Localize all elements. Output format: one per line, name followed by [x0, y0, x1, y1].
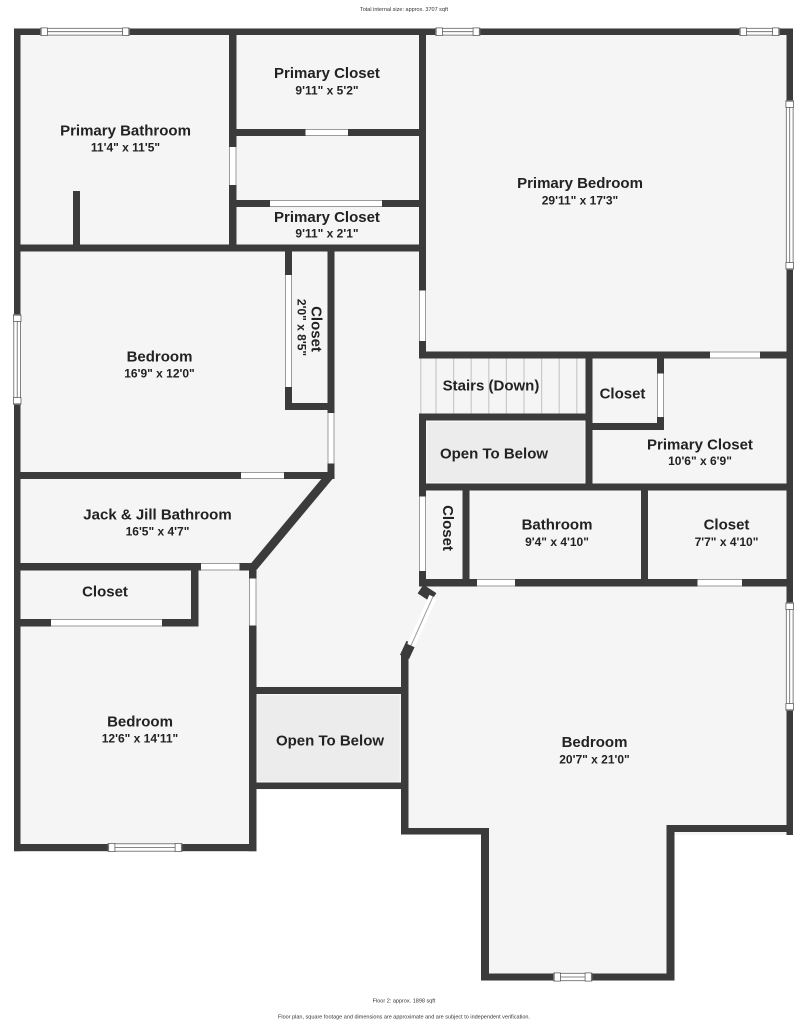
svg-text:Closet: Closet [82, 584, 128, 601]
svg-text:10'6" x 6'9": 10'6" x 6'9" [668, 454, 732, 468]
svg-text:Primary Closet: Primary Closet [647, 437, 753, 454]
svg-text:16'9" x 12'0": 16'9" x 12'0" [124, 367, 194, 381]
svg-text:Open To Below: Open To Below [440, 446, 548, 463]
svg-text:Floor 2: approx. 1898 sqft: Floor 2: approx. 1898 sqft [373, 999, 436, 1005]
svg-text:11'4" x 11'5": 11'4" x 11'5" [91, 141, 160, 155]
svg-text:Bedroom: Bedroom [127, 349, 193, 366]
svg-text:29'11" x 17'3": 29'11" x 17'3" [542, 194, 618, 208]
svg-text:16'5" x 4'7": 16'5" x 4'7" [126, 525, 190, 539]
svg-text:Total internal size: approx. 3: Total internal size: approx. 3707 sqft [360, 7, 449, 13]
svg-text:Closet: Closet [600, 386, 646, 403]
svg-text:Primary Bedroom: Primary Bedroom [517, 175, 643, 192]
svg-text:20'7" x 21'0": 20'7" x 21'0" [559, 753, 629, 767]
svg-text:Open To Below: Open To Below [276, 733, 384, 750]
svg-text:7'7" x 4'10": 7'7" x 4'10" [695, 535, 759, 549]
svg-text:Bedroom: Bedroom [562, 734, 628, 751]
svg-text:Closet: Closet [704, 517, 750, 534]
svg-text:Floor plan, square footage and: Floor plan, square footage and dimension… [278, 1015, 530, 1021]
svg-text:2'0" x 8'5": 2'0" x 8'5" [294, 299, 308, 356]
svg-text:Closet: Closet [308, 306, 325, 352]
svg-text:Jack & Jill Bathroom: Jack & Jill Bathroom [83, 507, 231, 524]
svg-text:9'4" x 4'10": 9'4" x 4'10" [525, 535, 589, 549]
svg-text:12'6" x 14'11": 12'6" x 14'11" [102, 732, 178, 746]
svg-text:Bedroom: Bedroom [107, 714, 173, 731]
svg-text:9'11" x 2'1": 9'11" x 2'1" [295, 227, 358, 241]
svg-text:Primary Closet: Primary Closet [274, 209, 380, 226]
svg-text:Bathroom: Bathroom [522, 517, 593, 534]
svg-text:Primary Bathroom: Primary Bathroom [60, 123, 191, 140]
svg-text:Primary Closet: Primary Closet [274, 65, 380, 82]
svg-text:Closet: Closet [439, 505, 456, 551]
svg-text:9'11" x 5'2": 9'11" x 5'2" [295, 84, 358, 98]
svg-text:Stairs (Down): Stairs (Down) [443, 378, 540, 395]
